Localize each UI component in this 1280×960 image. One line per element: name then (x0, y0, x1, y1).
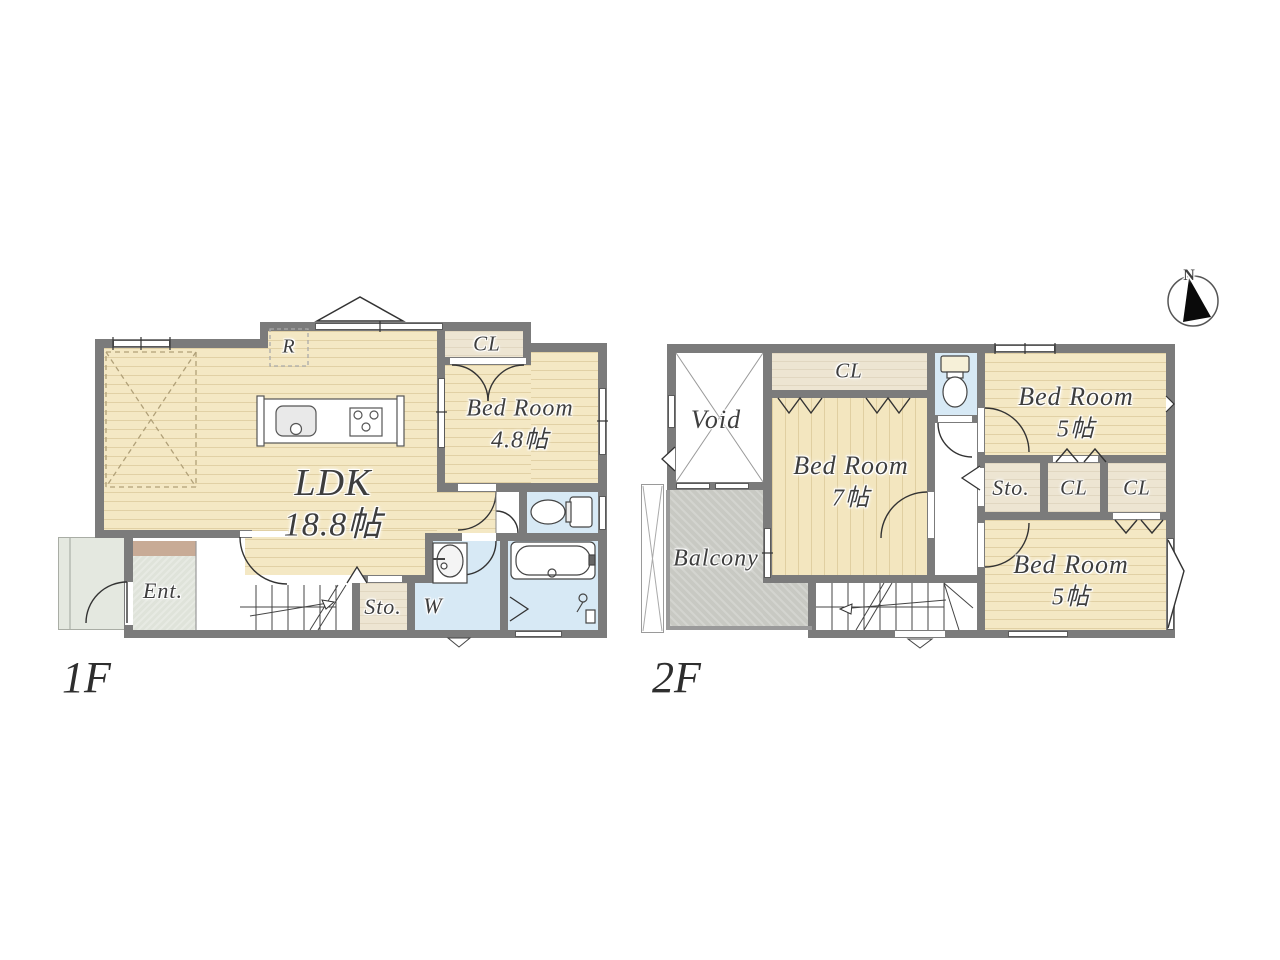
door-gap-storage-2f (978, 468, 984, 506)
door-gap-bedroom-5-south (978, 523, 984, 567)
room-toilet-2f (935, 353, 977, 415)
north-label: N (1183, 267, 1195, 285)
room-label-bedroom-1f-size: 4.8帖 (491, 420, 549, 455)
window (1167, 538, 1174, 630)
room-washroom (433, 541, 500, 630)
door-mark (448, 638, 470, 647)
room-ldk (104, 348, 437, 530)
window-balcony-door (764, 528, 771, 578)
door-gap-closet-1 (1053, 456, 1098, 462)
bay-window-mark (317, 297, 403, 321)
window (515, 631, 562, 637)
wall (95, 339, 104, 538)
room-label-washer: W (423, 593, 442, 619)
room-label-bedroom-1f-name: Bed Room (466, 396, 573, 423)
room-label-bedroom-5-south-size: 5帖 (1052, 577, 1090, 612)
room-label-bedroom-7-size: 7帖 (832, 478, 870, 513)
wall (95, 530, 252, 538)
wall (523, 343, 607, 352)
wall (1040, 463, 1048, 512)
room-label-closet-1-2f: CL (1060, 476, 1088, 501)
entrance-step (133, 541, 196, 556)
window (676, 483, 710, 489)
wall (772, 390, 935, 398)
wall (667, 344, 1175, 353)
window (315, 323, 443, 330)
room-label-storage-1f: Sto. (364, 594, 402, 620)
window (715, 483, 749, 489)
wall (519, 492, 527, 533)
room-label-entrance: Ent. (143, 578, 183, 604)
wall (352, 583, 360, 638)
room-label-bedroom-7-name: Bed Room (793, 451, 909, 481)
door-gap-bedroom-7 (928, 492, 934, 538)
balcony-wall (666, 490, 670, 630)
wall (763, 575, 985, 583)
wall (407, 583, 415, 638)
room-label-ldk-size: 18.8帖 (284, 497, 383, 546)
room-bathroom (508, 541, 598, 630)
wall (496, 533, 607, 541)
floor-plan-canvas: LDK 18.8帖 Bed Room 4.8帖 CL R Ent. Sto. W… (0, 0, 1280, 960)
door-mark (908, 639, 932, 648)
floor-label-1f: 1F (62, 652, 111, 703)
window (438, 378, 445, 448)
room-ldk (437, 492, 496, 533)
window (995, 345, 1055, 352)
window (1008, 631, 1068, 637)
window (895, 631, 945, 637)
door-gap-closet-2 (1113, 513, 1160, 519)
room-label-bedroom-5-north-name: Bed Room (1018, 382, 1134, 412)
porch (58, 537, 127, 630)
balcony-wall (666, 626, 812, 630)
room-label-refrigerator: R (282, 336, 295, 359)
balcony-eave (641, 484, 664, 633)
room-label-bedroom-5-north-size: 5帖 (1057, 409, 1095, 444)
room-label-balcony: Balcony (673, 546, 759, 573)
room-label-storage-2f: Sto. (992, 475, 1030, 501)
wall (808, 630, 1175, 638)
window (668, 395, 675, 428)
door-gap-storage (368, 576, 402, 582)
floor-label-2f: 2F (652, 652, 701, 703)
room-label-closet-1f: CL (473, 332, 501, 357)
door-gap-toilet-2f (938, 416, 972, 422)
door-gap-bedroom-5-north (978, 408, 984, 452)
window (113, 340, 170, 347)
wall (1100, 463, 1108, 512)
room-label-closet-top-2f: CL (835, 359, 863, 384)
room-balcony (763, 583, 808, 626)
door-gap-closet (450, 358, 526, 364)
wall (425, 533, 462, 541)
wall (500, 541, 508, 638)
door-gap-bedroom (458, 484, 496, 491)
window (599, 388, 606, 455)
room-label-closet-2-2f: CL (1123, 476, 1151, 501)
room-label-bedroom-5-south-name: Bed Room (1013, 550, 1129, 580)
window (599, 496, 606, 530)
room-toilet-1f (527, 490, 598, 533)
door-gap-ldk (240, 531, 288, 537)
door-gap-entrance (125, 582, 133, 625)
room-label-void: Void (691, 405, 741, 435)
wall (927, 353, 935, 583)
